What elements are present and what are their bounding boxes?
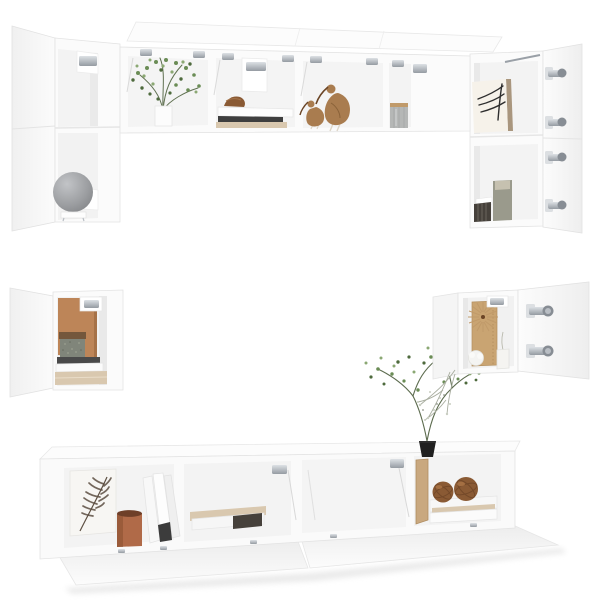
cabinet-door-open [518, 282, 589, 379]
cabinet-door-open [10, 288, 53, 397]
feather-print [70, 469, 116, 536]
lid-hinge [246, 62, 266, 71]
hinge-block [487, 296, 508, 307]
hinge-block [80, 297, 102, 311]
stacked-cabinet-seam [55, 127, 120, 128]
tall-wall-cabinet-right [470, 44, 582, 233]
product-photo-stage [0, 0, 600, 600]
lid-hinge [79, 56, 97, 66]
tall-wall-cabinet-left [12, 26, 120, 231]
wood-panel [416, 459, 428, 524]
copper-pot [117, 510, 142, 547]
storage-jar [390, 103, 408, 128]
white-vase [155, 106, 172, 126]
small-wall-cabinet-left [10, 288, 123, 397]
botanical-print [472, 79, 513, 133]
furniture-set-illustration [0, 0, 600, 600]
cabinet-side-panel [433, 293, 458, 379]
stand-opening-3 [302, 457, 406, 533]
wall-shelf-long [120, 22, 502, 133]
